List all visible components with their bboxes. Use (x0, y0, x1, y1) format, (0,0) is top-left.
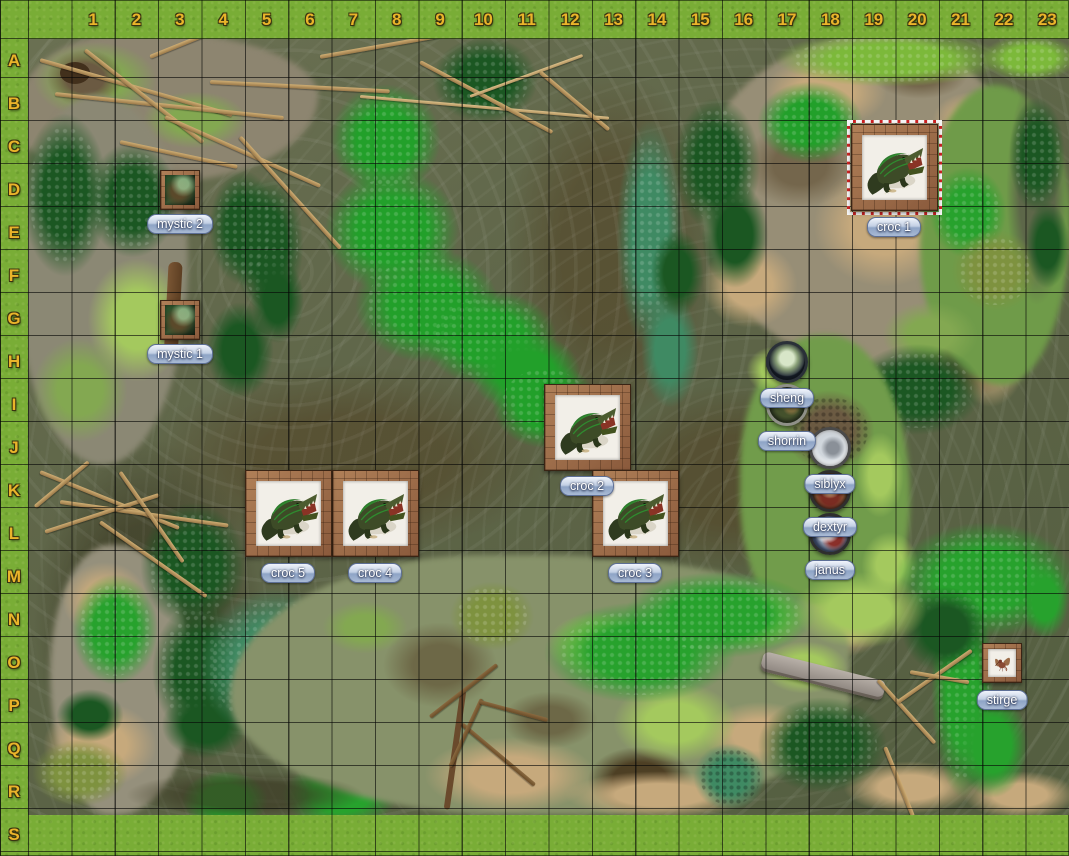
terrain-sand (770, 600, 890, 660)
terrain-moss (790, 570, 930, 650)
terrain-mud (900, 330, 1020, 400)
croc-art (343, 481, 408, 546)
terrain-sand (760, 55, 890, 130)
column-header-20: 20 (896, 0, 939, 39)
token-label-mystic-2[interactable]: mystic 2 (147, 214, 213, 234)
terrain-plants (208, 168, 278, 288)
terrain-palm-trees (160, 690, 250, 760)
terrain-reeds (650, 228, 705, 318)
dead-branch (55, 92, 284, 120)
terrain-palm (850, 342, 985, 437)
terrain-bush (28, 110, 110, 280)
terrain-mud (500, 690, 600, 750)
terrain-burrow (60, 62, 90, 84)
dead-branch (539, 70, 611, 131)
terrain-teal-mat (195, 585, 355, 745)
token-croc-5[interactable] (245, 470, 332, 557)
terrain-sand (930, 90, 1020, 150)
crocodile-illustration (555, 395, 620, 460)
column-header-11: 11 (505, 0, 548, 39)
terrain-sand (560, 770, 760, 815)
terrain-moss (760, 640, 850, 695)
row-header-J: J (0, 426, 28, 469)
token-croc-1[interactable] (851, 124, 938, 211)
terrain-sand-trail (950, 290, 1030, 410)
stirge-illustration (988, 649, 1016, 677)
terrain-mud (870, 50, 970, 100)
dead-branch (419, 60, 553, 134)
token-sheng[interactable] (766, 341, 808, 383)
token-label-croc-1[interactable]: croc 1 (867, 217, 921, 237)
terrain-murk (28, 430, 268, 810)
terrain-grass-tufts (1020, 560, 1069, 640)
dead-branch (39, 470, 180, 530)
dead-branch (84, 48, 205, 144)
terrain-dirt-bank (28, 39, 318, 182)
terrain-bush (672, 95, 762, 235)
terrain-dirt (45, 48, 125, 108)
column-header-3: 3 (158, 0, 201, 39)
column-header-2: 2 (115, 0, 158, 39)
terrain-moss (140, 90, 250, 150)
token-stirge[interactable] (982, 643, 1022, 683)
token-label-dextyr[interactable]: dextyr (803, 517, 857, 537)
token-label-croc-4[interactable]: croc 4 (348, 563, 402, 583)
terrain-plants (180, 770, 270, 815)
terrain-mud (380, 620, 500, 710)
terrain-moss (610, 680, 740, 765)
token-mystic-2[interactable] (160, 170, 200, 210)
dead-branch (360, 95, 609, 120)
dead-root (877, 679, 937, 745)
terrain-palm-fronds (755, 695, 890, 795)
row-header-G: G (0, 297, 28, 340)
terrain-sand (700, 700, 820, 770)
row-header-F: F (0, 254, 28, 297)
terrain-plants (205, 300, 275, 400)
terrain-bank (28, 95, 188, 465)
crocodile-illustration (343, 481, 408, 546)
column-header-6: 6 (288, 0, 331, 39)
column-header-9: 9 (418, 0, 461, 39)
column-header-17: 17 (765, 0, 808, 39)
terrain-moss (700, 585, 810, 650)
column-header-16: 16 (722, 0, 765, 39)
column-header-12: 12 (549, 0, 592, 39)
column-header-22: 22 (982, 0, 1025, 39)
terrain-bush (430, 39, 540, 125)
token-label-stirge[interactable]: stirge (977, 690, 1028, 710)
terrain-seaweed (328, 82, 443, 197)
token-label-siblyx[interactable]: siblyx (804, 474, 855, 494)
token-label-sheng[interactable]: sheng (760, 388, 814, 408)
dead-root (897, 649, 973, 704)
croc-art (256, 481, 321, 546)
terrain-pond (585, 745, 695, 815)
terrain-grass-tufts (890, 520, 1069, 640)
terrain-sand (700, 240, 800, 330)
terrain-small-tree (692, 742, 767, 812)
token-label-croc-5[interactable]: croc 5 (261, 563, 315, 583)
crocodile-illustration (256, 481, 321, 546)
column-header-15: 15 (679, 0, 722, 39)
dead-branch (34, 460, 90, 508)
terrain-moss (880, 300, 980, 370)
token-siblyx[interactable] (809, 427, 851, 469)
terrain-bank (50, 545, 190, 815)
token-label-janus[interactable]: janus (805, 560, 855, 580)
terrain-sand (40, 700, 160, 790)
row-header-H: H (0, 340, 28, 383)
terrain-plants (55, 688, 125, 743)
row-header-N: N (0, 598, 28, 641)
terrain-murk (500, 60, 720, 440)
row-header-S: S (0, 813, 28, 856)
croc-art (555, 395, 620, 460)
terrain-moss (30, 335, 130, 445)
column-header-5: 5 (245, 0, 288, 39)
terrain-water-pocket (1005, 70, 1069, 310)
column-header-19: 19 (852, 0, 895, 39)
row-header-C: C (0, 125, 28, 168)
terrain-leaf-mat (290, 595, 460, 705)
mystic-portrait (165, 305, 195, 335)
terrain-teal-weeds (640, 290, 700, 410)
column-header-14: 14 (635, 0, 678, 39)
row-header-E: E (0, 211, 28, 254)
terrain-hedge (930, 572, 995, 802)
terrain-seaweed (420, 288, 560, 388)
terrain-plants (280, 760, 400, 815)
dead-branch (99, 520, 208, 598)
terrain-bush (900, 585, 990, 675)
dead-sapling-trunk (444, 690, 467, 810)
terrain-shrubs (770, 39, 1010, 88)
terrain-moss (545, 610, 655, 680)
dead-root (910, 670, 970, 684)
terrain-mud (740, 120, 860, 210)
terrain-moss-mound (30, 738, 130, 808)
row-header-L: L (0, 512, 28, 555)
terrain-bush (230, 175, 305, 315)
terrain-seaweed (352, 245, 502, 365)
terrain-olive-shag (448, 580, 536, 652)
row-header-Q: Q (0, 727, 28, 770)
column-header-4: 4 (202, 0, 245, 39)
row-header-D: D (0, 168, 28, 211)
terrain-pond (120, 770, 370, 815)
row-header-R: R (0, 770, 28, 813)
fallen-log (759, 651, 886, 701)
token-mystic-1[interactable] (160, 300, 200, 340)
dead-branch (39, 58, 232, 117)
dead-branch (320, 39, 498, 59)
dead-branch (149, 39, 271, 59)
terrain-sand (420, 735, 600, 815)
terrain-sand (60, 560, 150, 640)
terrain-palm-trees (138, 500, 248, 630)
terrain-grass-bank (920, 85, 1069, 385)
dead-branch (118, 471, 184, 563)
dead-branch (469, 54, 583, 98)
terrain-olive-shag (950, 228, 1040, 313)
column-header-1: 1 (71, 0, 114, 39)
row-header-A: A (0, 39, 28, 82)
terrain-seaweed (322, 165, 462, 295)
map-canvas[interactable]: mystic 2 mystic 1 croc 1 croc 2 croc 3 c… (28, 39, 1069, 815)
dead-branch (429, 663, 498, 718)
token-croc-2[interactable] (544, 384, 631, 471)
terrain-teal-weeds (615, 115, 685, 355)
column-header-13: 13 (592, 0, 635, 39)
row-header-K: K (0, 469, 28, 512)
dead-branch (120, 140, 238, 169)
row-header-I: I (0, 383, 28, 426)
terrain-palm-trees (150, 600, 250, 740)
terrain-shrubs (980, 39, 1069, 82)
terrain-plants (1008, 95, 1066, 215)
terrain-sand (840, 760, 980, 815)
battle-map-stage: mystic 2 mystic 1 croc 1 croc 2 croc 3 c… (0, 0, 1069, 856)
row-header-B: B (0, 82, 28, 125)
dead-branch (479, 700, 548, 722)
row-header-M: M (0, 555, 28, 598)
terrain-moss (320, 600, 410, 655)
terrain-bottom-bank (230, 555, 850, 815)
terrain-grass-tufts (540, 600, 740, 705)
column-header-18: 18 (809, 0, 852, 39)
column-header-7: 7 (332, 0, 375, 39)
column-header-21: 21 (939, 0, 982, 39)
dead-branch (461, 722, 536, 786)
mystic-portrait (165, 175, 195, 205)
terrain-sand (960, 770, 1069, 815)
dead-root (883, 746, 915, 815)
croc-art (862, 135, 927, 200)
column-header-23: 23 (1026, 0, 1069, 39)
row-header-O: O (0, 641, 28, 684)
token-croc-4[interactable] (332, 470, 419, 557)
terrain-moss (860, 530, 920, 600)
terrain-plants (1025, 200, 1069, 290)
dead-branch (448, 698, 483, 768)
terrain-bush (250, 255, 305, 345)
dead-branch (44, 493, 159, 534)
terrain-hedge (620, 570, 820, 660)
terrain-moss (30, 40, 160, 120)
terrain-bright-leaves (240, 655, 360, 750)
token-label-croc-2[interactable]: croc 2 (560, 476, 614, 496)
row-header-P: P (0, 684, 28, 727)
token-label-croc-3[interactable]: croc 3 (608, 563, 662, 583)
terrain-grass-tufts (70, 572, 160, 687)
token-label-shorrin[interactable]: shorrin (758, 431, 816, 451)
dead-branch (60, 500, 229, 528)
dead-branch (239, 136, 342, 250)
terrain-moss (855, 430, 905, 520)
stirge-art (988, 649, 1016, 677)
token-label-mystic-1[interactable]: mystic 1 (147, 344, 213, 364)
column-header-10: 10 (462, 0, 505, 39)
column-header-8: 8 (375, 0, 418, 39)
dead-branch (210, 80, 390, 93)
crocodile-illustration (862, 135, 927, 200)
terrain-bush (700, 180, 770, 290)
